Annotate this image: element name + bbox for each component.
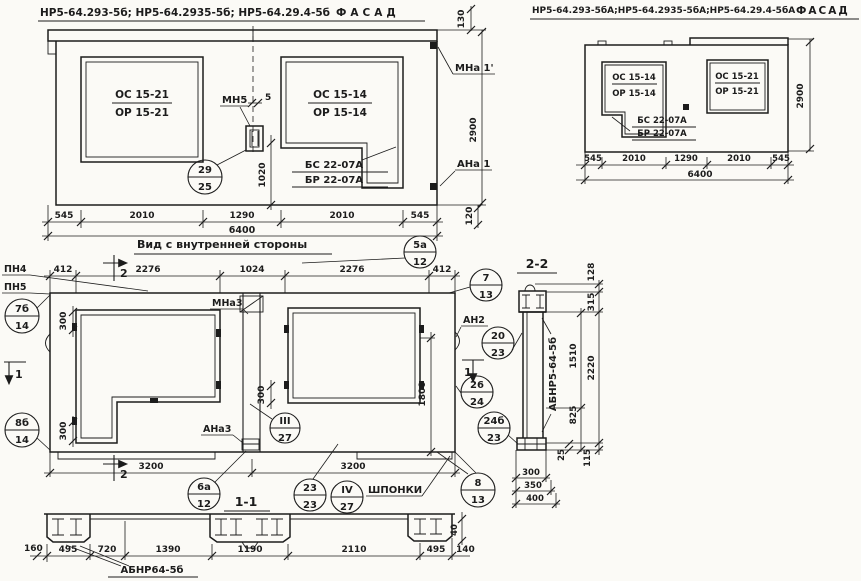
window-mark: ОС 15-14 xyxy=(313,89,367,101)
section-2-2-linework xyxy=(517,285,546,450)
dim-2900: 2900 xyxy=(796,83,806,108)
dim: 495 xyxy=(427,545,446,555)
drawing-sheet: НР5-64.293-5б; НР5-64.2935-5б; НР5-64.29… xyxy=(0,0,861,581)
section-2-2-title: 2-2 xyxy=(526,256,549,271)
dim: 412 xyxy=(433,265,452,275)
svg-text:14: 14 xyxy=(15,321,29,332)
section-panel-label: АБНР64-5б xyxy=(120,564,183,576)
dim-2900: 2900 xyxy=(469,117,479,142)
dim: 1390 xyxy=(155,545,180,555)
balloon-8-13: 8 13 xyxy=(437,452,495,507)
balcony-mark: БР 22-07А xyxy=(637,129,687,139)
balloon-5a-12: 5а 12 xyxy=(302,236,436,268)
dim-3200: 3200 xyxy=(138,462,163,472)
svg-text:IV: IV xyxy=(341,485,353,496)
dim-300: 300 xyxy=(257,386,267,405)
label-mna1: МНа 1' xyxy=(455,63,494,74)
svg-text:5а: 5а xyxy=(413,240,427,251)
dim-160: 160 xyxy=(24,544,43,554)
dim-5: 5 xyxy=(265,93,271,103)
svg-text:2: 2 xyxy=(120,468,128,481)
svg-text:25: 25 xyxy=(198,182,212,193)
dim: 545 xyxy=(584,154,602,164)
alt-facade-title-word: ФАСАД xyxy=(796,5,850,17)
dim-1510: 1510 xyxy=(569,343,579,368)
label-mna3: МНа3 xyxy=(212,298,242,309)
dim: 545 xyxy=(55,211,74,221)
dim: 2276 xyxy=(339,265,364,275)
svg-text:14: 14 xyxy=(15,435,29,446)
main-facade-window-labels: ОС 15-21 ОР 15-21 ОС 15-14 ОР 15-14 БС 2… xyxy=(112,89,396,187)
svg-text:1: 1 xyxy=(15,368,23,381)
svg-text:6а: 6а xyxy=(197,482,211,493)
svg-text:20: 20 xyxy=(491,331,505,342)
svg-text:13: 13 xyxy=(471,495,485,506)
section-1-1-linework xyxy=(44,514,455,548)
balcony-mark: БС 22-07А xyxy=(637,116,687,126)
balloon-8b-14: 8б 14 xyxy=(5,413,50,450)
dim: 2010 xyxy=(329,211,354,221)
inner-view-drawing: Вид с внутренней стороны 412 2276 1024 2… xyxy=(2,236,522,513)
dim: 720 xyxy=(98,545,117,555)
svg-text:12: 12 xyxy=(197,499,211,510)
label-shponki: ШПОНКИ xyxy=(368,485,422,496)
main-facade-title-word: ФАСАД xyxy=(336,7,400,19)
svg-text:23: 23 xyxy=(491,348,505,359)
label-pn4: ПН4 xyxy=(4,264,27,275)
section-1-1-title: 1-1 xyxy=(235,494,258,509)
main-facade-title-codes: НР5-64.293-5б; НР5-64.2935-5б; НР5-64.29… xyxy=(40,7,330,19)
dim-1800: 1800 xyxy=(418,381,428,406)
label-ana3: АНа3 xyxy=(203,424,231,435)
svg-text:27: 27 xyxy=(340,502,354,513)
dim: 412 xyxy=(54,265,73,275)
balloon-7b-14: 7б 14 xyxy=(5,295,50,333)
window-mark: ОС 15-14 xyxy=(612,73,656,83)
window-mark: ОР 15-14 xyxy=(313,107,367,119)
balloon-26-24: 26 24 xyxy=(456,376,493,408)
svg-text:8: 8 xyxy=(475,478,482,489)
main-facade-linework xyxy=(48,26,437,205)
svg-text:7б: 7б xyxy=(15,303,29,315)
section-2-2-drawing: 2-2 АБНР5-64-5б 1510 xyxy=(512,256,603,508)
label-an2: АН2 xyxy=(463,315,485,326)
section-mark-2-top: 2 xyxy=(103,255,128,281)
dim: 1290 xyxy=(674,154,698,164)
balcony-mark: БР 22-07А xyxy=(305,175,363,186)
dim: 2010 xyxy=(129,211,154,221)
dim-400: 400 xyxy=(526,494,544,504)
svg-text:12: 12 xyxy=(413,257,427,268)
inner-view-linework xyxy=(46,293,460,459)
dim: 2010 xyxy=(622,154,646,164)
dim-2220: 2220 xyxy=(587,355,597,380)
dim-120: 120 xyxy=(465,207,475,226)
svg-text:III: III xyxy=(279,416,290,427)
dim-130: 130 xyxy=(457,10,467,29)
section-1-1-drawing: 160 495 720 1390 1190 2110 495 40 140 АБ… xyxy=(24,512,475,577)
section-mark-1-left: 1 xyxy=(4,362,26,384)
section-panel-label: АБНР5-64-5б xyxy=(547,337,559,411)
dim: 2010 xyxy=(727,154,751,164)
window-mark: ОР 15-14 xyxy=(612,89,656,99)
svg-text:23: 23 xyxy=(303,483,317,494)
dim: 545 xyxy=(411,211,430,221)
dim: 2276 xyxy=(135,265,160,275)
svg-text:24б: 24б xyxy=(484,415,505,427)
dim: 495 xyxy=(59,545,78,555)
svg-text:27: 27 xyxy=(278,433,292,444)
dim-140: 140 xyxy=(456,545,475,555)
window-mark: ОС 15-21 xyxy=(715,72,759,82)
svg-text:24: 24 xyxy=(470,397,484,408)
dim-825: 825 xyxy=(569,406,579,425)
window-mark: ОР 15-21 xyxy=(115,107,169,119)
alt-facade-title-codes: НР5-64.293-5бА;НР5-64.2935-5бА;НР5-64.29… xyxy=(532,5,795,16)
svg-text:7: 7 xyxy=(483,273,490,284)
svg-text:13: 13 xyxy=(479,290,493,301)
dim: 1290 xyxy=(229,211,254,221)
window-mark: ОС 15-21 xyxy=(115,89,169,101)
blueprint-svg: НР5-64.293-5б; НР5-64.2935-5б; НР5-64.29… xyxy=(0,0,861,581)
dim-315: 315 xyxy=(587,293,597,312)
label-ana1: АНа 1 xyxy=(457,159,490,170)
window-mark: ОР 15-21 xyxy=(715,87,759,97)
dim-128: 128 xyxy=(587,263,597,282)
balcony-mark: БС 22-07А xyxy=(305,160,363,171)
svg-text:2: 2 xyxy=(120,267,128,280)
svg-text:29: 29 xyxy=(198,165,212,176)
dim-1020: 1020 xyxy=(258,162,268,187)
inner-view-title: Вид с внутренней стороны xyxy=(137,238,307,251)
svg-text:26: 26 xyxy=(470,380,484,391)
label-pn5: ПН5 xyxy=(4,282,27,293)
balloon-III-27: III 27 xyxy=(250,404,300,444)
svg-text:23: 23 xyxy=(303,500,317,511)
dim-25: 25 xyxy=(557,449,567,461)
dim-40: 40 xyxy=(450,524,460,536)
dim: 2110 xyxy=(341,545,366,555)
balloon-20-23: 20 23 xyxy=(482,327,522,359)
dim: 545 xyxy=(772,154,790,164)
dim-300: 300 xyxy=(59,422,69,441)
dim-total: 6400 xyxy=(229,225,256,236)
dim-3200: 3200 xyxy=(340,462,365,472)
alt-facade-dims: 2900 545 2010 1290 2010 545 6400 xyxy=(576,38,814,184)
section-mark-1-right: 1 xyxy=(462,360,484,382)
svg-text:8б: 8б xyxy=(15,417,29,429)
dim-300: 300 xyxy=(59,312,69,331)
balloon-IV-27: IV 27 xyxy=(331,481,363,513)
inner-view-top-dims: 412 2276 1024 2276 412 xyxy=(44,265,460,293)
dim: 1190 xyxy=(237,545,262,555)
svg-text:23: 23 xyxy=(487,433,501,444)
balloon-24b-23: 24б 23 xyxy=(478,412,518,444)
dim-115: 115 xyxy=(583,449,593,467)
dim: 1024 xyxy=(239,265,264,275)
dim-350: 350 xyxy=(524,481,542,491)
alt-facade-drawing: НР5-64.293-5бА;НР5-64.2935-5бА;НР5-64.29… xyxy=(530,5,859,184)
dim-300: 300 xyxy=(522,468,540,478)
anchor-label-mn5: МН5 xyxy=(222,95,247,106)
dim-total: 6400 xyxy=(687,170,712,180)
main-facade-drawing: НР5-64.293-5б; НР5-64.2935-5б; НР5-64.29… xyxy=(38,5,495,241)
